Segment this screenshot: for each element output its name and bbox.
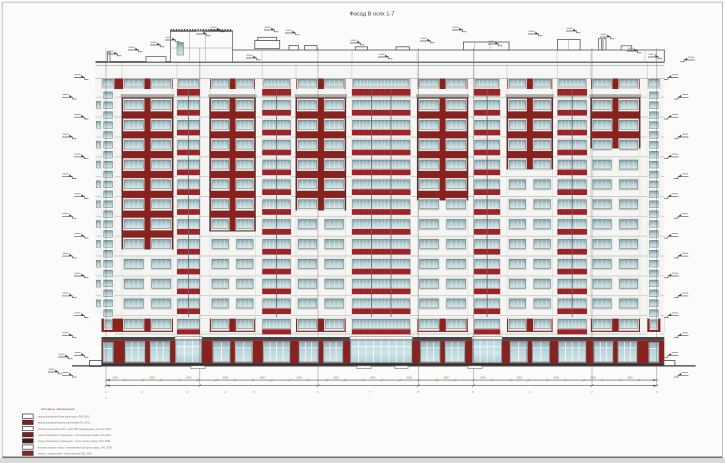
svg-text:3300: 3300 xyxy=(113,376,119,379)
svg-text:3300: 3300 xyxy=(223,376,229,379)
svg-text:3300: 3300 xyxy=(186,376,192,379)
svg-text:краска фасадная белая водно-ди: краска фасадная белая водно-дисп. RAL 90… xyxy=(38,415,90,418)
svg-text:3300: 3300 xyxy=(627,376,633,379)
svg-text:Условные обозначения: Условные обозначения xyxy=(41,407,75,411)
svg-text:3300: 3300 xyxy=(333,376,339,379)
svg-text:3300: 3300 xyxy=(590,376,596,379)
svg-text:3300: 3300 xyxy=(443,376,449,379)
svg-text:3300: 3300 xyxy=(370,376,376,379)
svg-text:Фасад В осях 1-7: Фасад В осях 1-7 xyxy=(350,12,395,18)
svg-text:3300: 3300 xyxy=(296,376,302,379)
svg-text:3300: 3300 xyxy=(407,376,413,379)
svg-text:панель балконного ограждения -: панель балконного ограждения - листы тём… xyxy=(38,440,111,443)
svg-text:краска фасадная красно-коричне: краска фасадная красно-коричневая RAL 30… xyxy=(38,422,91,425)
svg-text:панель балконного ограждения -: панель балконного ограждения - листы кра… xyxy=(38,434,112,437)
svg-text:3300: 3300 xyxy=(149,376,155,379)
svg-text:3300: 3300 xyxy=(260,376,266,379)
svg-text:цоколь - керамогранит тёмно-кр: цоколь - керамогранит тёмно-красный RAL … xyxy=(38,453,92,456)
svg-text:3300: 3300 xyxy=(517,376,523,379)
svg-text:витражи первого этажа - алюмин: витражи первого этажа - алюминиевый проф… xyxy=(38,446,112,449)
svg-text:3300: 3300 xyxy=(554,376,560,379)
svg-text:профиль оконный белый - окна П: профиль оконный белый - окна ПВХ однокам… xyxy=(38,428,112,431)
svg-text:3300: 3300 xyxy=(480,376,486,379)
